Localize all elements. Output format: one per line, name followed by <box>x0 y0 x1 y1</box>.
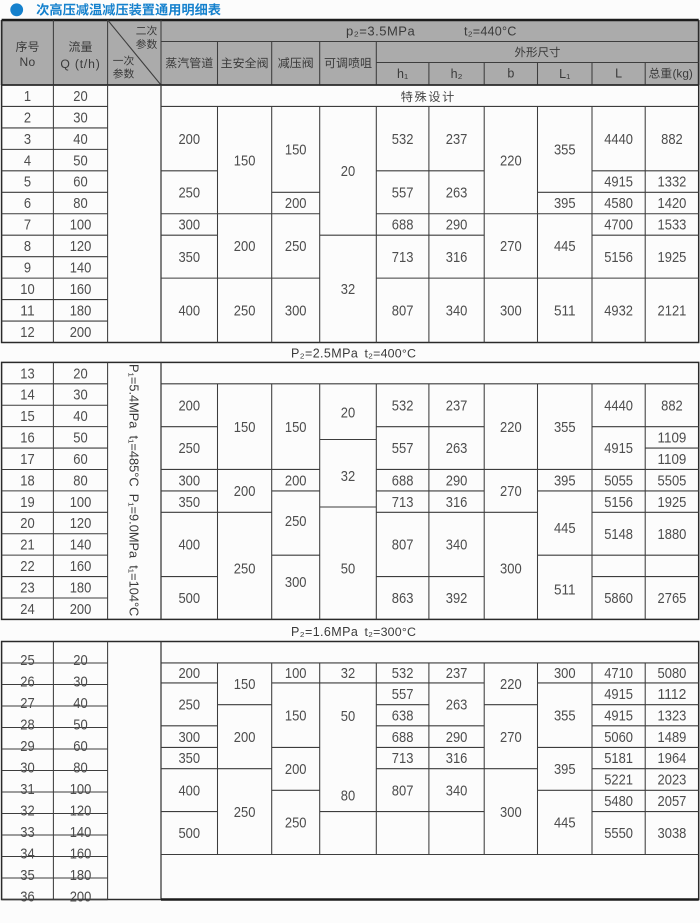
svg-text:12: 12 <box>20 324 34 341</box>
svg-text:882: 882 <box>661 131 683 148</box>
svg-text:40: 40 <box>73 695 87 712</box>
svg-text:14: 14 <box>20 387 34 404</box>
svg-text:t₂=300°C: t₂=300°C <box>365 625 417 639</box>
svg-text:5505: 5505 <box>658 472 687 489</box>
svg-text:50: 50 <box>73 430 87 447</box>
svg-text:355: 355 <box>554 707 576 724</box>
svg-text:263: 263 <box>446 440 468 457</box>
svg-text:557: 557 <box>392 440 414 457</box>
svg-text:35: 35 <box>20 867 34 884</box>
svg-text:395: 395 <box>554 761 576 778</box>
svg-text:21: 21 <box>20 537 34 554</box>
svg-text:50: 50 <box>341 561 355 578</box>
svg-text:220: 220 <box>500 152 522 169</box>
svg-text:100: 100 <box>70 781 92 798</box>
svg-text:50: 50 <box>73 716 87 733</box>
svg-text:t₂=440°C: t₂=440°C <box>464 24 517 38</box>
svg-text:290: 290 <box>446 217 468 234</box>
svg-text:237: 237 <box>446 397 468 414</box>
svg-text:33: 33 <box>20 824 34 841</box>
svg-text:4700: 4700 <box>604 217 633 234</box>
svg-text:557: 557 <box>392 686 414 703</box>
svg-text:250: 250 <box>178 440 200 457</box>
svg-text:250: 250 <box>234 302 256 319</box>
svg-text:1964: 1964 <box>658 750 687 767</box>
svg-text:22: 22 <box>20 558 34 575</box>
svg-text:No: No <box>20 55 36 69</box>
svg-text:500: 500 <box>178 825 200 842</box>
svg-text:511: 511 <box>554 302 576 319</box>
svg-text:4915: 4915 <box>604 174 633 191</box>
svg-text:30: 30 <box>20 759 34 776</box>
svg-text:355: 355 <box>554 419 576 436</box>
svg-text:532: 532 <box>392 397 414 414</box>
svg-text:200: 200 <box>234 238 256 255</box>
svg-text:200: 200 <box>285 761 307 778</box>
svg-text:50: 50 <box>73 152 87 169</box>
svg-text:300: 300 <box>500 302 522 319</box>
svg-text:270: 270 <box>500 483 522 500</box>
svg-text:2121: 2121 <box>658 302 687 319</box>
svg-text:237: 237 <box>446 665 468 682</box>
svg-text:4915: 4915 <box>604 686 633 703</box>
svg-text:150: 150 <box>285 142 307 159</box>
svg-text:11: 11 <box>20 302 34 319</box>
svg-text:5055: 5055 <box>604 472 633 489</box>
svg-text:200: 200 <box>178 397 200 414</box>
svg-text:8: 8 <box>24 238 31 255</box>
svg-text:350: 350 <box>178 249 200 266</box>
svg-text:250: 250 <box>178 697 200 714</box>
svg-text:250: 250 <box>234 804 256 821</box>
svg-text:6: 6 <box>24 195 31 212</box>
svg-text:250: 250 <box>178 184 200 201</box>
svg-text:100: 100 <box>285 665 307 682</box>
svg-text:36: 36 <box>20 888 34 905</box>
svg-text:140: 140 <box>70 824 92 841</box>
svg-text:20: 20 <box>73 652 87 669</box>
svg-text:250: 250 <box>234 561 256 578</box>
svg-text:27: 27 <box>20 695 34 712</box>
svg-text:17: 17 <box>20 451 34 468</box>
svg-text:180: 180 <box>70 579 92 596</box>
svg-text:32: 32 <box>341 281 355 298</box>
svg-text:400: 400 <box>178 537 200 554</box>
svg-text:316: 316 <box>446 249 468 266</box>
svg-text:2023: 2023 <box>658 772 687 789</box>
svg-text:270: 270 <box>500 238 522 255</box>
svg-text:150: 150 <box>234 676 256 693</box>
svg-text:250: 250 <box>285 815 307 832</box>
svg-text:13: 13 <box>20 365 34 382</box>
svg-text:200: 200 <box>178 665 200 682</box>
svg-text:300: 300 <box>500 561 522 578</box>
svg-text:300: 300 <box>554 665 576 682</box>
svg-text:220: 220 <box>500 676 522 693</box>
svg-text:5: 5 <box>24 174 31 191</box>
svg-text:P₂=1.6MPa: P₂=1.6MPa <box>291 625 358 639</box>
svg-text:32: 32 <box>20 802 34 819</box>
svg-text:688: 688 <box>392 217 414 234</box>
svg-text:120: 120 <box>70 515 92 532</box>
svg-text:300: 300 <box>500 804 522 821</box>
svg-text:1880: 1880 <box>658 526 687 543</box>
svg-text:200: 200 <box>234 483 256 500</box>
svg-text:1109: 1109 <box>658 430 687 447</box>
svg-text:340: 340 <box>446 302 468 319</box>
svg-text:2057: 2057 <box>658 793 687 810</box>
svg-text:270: 270 <box>500 729 522 746</box>
svg-text:5080: 5080 <box>658 665 687 682</box>
svg-text:200: 200 <box>70 888 92 905</box>
svg-text:713: 713 <box>392 494 414 511</box>
svg-text:290: 290 <box>446 729 468 746</box>
svg-text:395: 395 <box>554 472 576 489</box>
svg-text:882: 882 <box>661 397 683 414</box>
svg-text:60: 60 <box>73 738 87 755</box>
svg-text:80: 80 <box>73 472 87 489</box>
svg-text:263: 263 <box>446 184 468 201</box>
svg-text:2: 2 <box>24 109 31 126</box>
svg-text:688: 688 <box>392 729 414 746</box>
svg-text:863: 863 <box>392 590 414 607</box>
svg-text:5550: 5550 <box>604 825 633 842</box>
svg-text:(kg): (kg) <box>673 66 693 80</box>
svg-text:24: 24 <box>20 601 34 618</box>
svg-text:237: 237 <box>446 131 468 148</box>
svg-text:34: 34 <box>20 845 34 862</box>
svg-text:300: 300 <box>285 302 307 319</box>
svg-text:220: 220 <box>500 419 522 436</box>
svg-text:4580: 4580 <box>604 195 633 212</box>
svg-text:60: 60 <box>73 451 87 468</box>
svg-text:200: 200 <box>234 729 256 746</box>
svg-text:150: 150 <box>234 152 256 169</box>
svg-text:1112: 1112 <box>658 686 687 703</box>
svg-text:340: 340 <box>446 782 468 799</box>
svg-text:557: 557 <box>392 184 414 201</box>
svg-text:807: 807 <box>392 537 414 554</box>
svg-text:340: 340 <box>446 537 468 554</box>
svg-text:L₁: L₁ <box>559 67 570 81</box>
svg-text:1925: 1925 <box>658 249 687 266</box>
svg-text:p₂=3.5MPa: p₂=3.5MPa <box>346 23 415 38</box>
svg-text:h₂: h₂ <box>451 67 463 81</box>
svg-text:9: 9 <box>24 260 31 277</box>
svg-text:2765: 2765 <box>658 590 687 607</box>
svg-text:1489: 1489 <box>658 729 687 746</box>
svg-text:4915: 4915 <box>604 440 633 457</box>
svg-text:160: 160 <box>70 845 92 862</box>
svg-text:30: 30 <box>73 109 87 126</box>
svg-text:5156: 5156 <box>604 249 633 266</box>
svg-text:30: 30 <box>73 673 87 690</box>
svg-text:1420: 1420 <box>658 195 687 212</box>
svg-text:50: 50 <box>341 708 355 725</box>
svg-text:80: 80 <box>341 788 355 805</box>
svg-text:3: 3 <box>24 131 31 148</box>
svg-text:4440: 4440 <box>604 131 633 148</box>
svg-text:250: 250 <box>285 513 307 530</box>
svg-text:19: 19 <box>20 494 34 511</box>
svg-text:20: 20 <box>20 515 34 532</box>
svg-text:160: 160 <box>70 281 92 298</box>
svg-text:350: 350 <box>178 494 200 511</box>
svg-text:20: 20 <box>73 365 87 382</box>
svg-text:300: 300 <box>178 217 200 234</box>
svg-text:26: 26 <box>20 673 34 690</box>
svg-text:400: 400 <box>178 302 200 319</box>
svg-text:638: 638 <box>392 707 414 724</box>
svg-text:t₂=400°C: t₂=400°C <box>365 346 417 360</box>
svg-text:532: 532 <box>392 665 414 682</box>
svg-text:P₂=2.5MPa: P₂=2.5MPa <box>291 346 358 360</box>
svg-text:L: L <box>615 67 622 81</box>
svg-text:16: 16 <box>20 430 34 447</box>
svg-text:500: 500 <box>178 590 200 607</box>
svg-text:20: 20 <box>73 88 87 105</box>
svg-text:30: 30 <box>73 387 87 404</box>
svg-text:4: 4 <box>24 152 31 169</box>
svg-text:32: 32 <box>341 665 355 682</box>
svg-text:160: 160 <box>70 558 92 575</box>
svg-text:300: 300 <box>285 574 307 591</box>
svg-text:1109: 1109 <box>658 451 687 468</box>
svg-text:1: 1 <box>24 88 31 105</box>
svg-text:300: 300 <box>178 472 200 489</box>
svg-text:60: 60 <box>73 174 87 191</box>
svg-text:807: 807 <box>392 782 414 799</box>
svg-text:100: 100 <box>70 494 92 511</box>
svg-text:445: 445 <box>554 815 576 832</box>
svg-text:511: 511 <box>554 582 576 599</box>
svg-text:20: 20 <box>341 405 355 422</box>
svg-text:316: 316 <box>446 750 468 767</box>
svg-text:200: 200 <box>70 601 92 618</box>
svg-text:80: 80 <box>73 195 87 212</box>
svg-text:150: 150 <box>285 419 307 436</box>
svg-text:290: 290 <box>446 472 468 489</box>
svg-text:7: 7 <box>24 217 31 234</box>
svg-text:395: 395 <box>554 195 576 212</box>
svg-text:20: 20 <box>341 163 355 180</box>
svg-text:250: 250 <box>285 238 307 255</box>
svg-text:140: 140 <box>70 260 92 277</box>
svg-text:1332: 1332 <box>658 174 687 191</box>
svg-text:31: 31 <box>20 781 34 798</box>
svg-text:1925: 1925 <box>658 494 687 511</box>
svg-text:5221: 5221 <box>604 772 633 789</box>
svg-text:5181: 5181 <box>604 750 633 767</box>
svg-text:40: 40 <box>73 408 87 425</box>
svg-text:5860: 5860 <box>604 590 633 607</box>
svg-text:40: 40 <box>73 131 87 148</box>
svg-text:100: 100 <box>70 217 92 234</box>
svg-text:263: 263 <box>446 697 468 714</box>
svg-text:h₁: h₁ <box>397 67 408 81</box>
svg-text:150: 150 <box>285 707 307 724</box>
svg-text:b: b <box>507 67 514 81</box>
svg-text:5480: 5480 <box>604 793 633 810</box>
svg-text:5060: 5060 <box>604 729 633 746</box>
svg-text:140: 140 <box>70 537 92 554</box>
svg-text:200: 200 <box>178 131 200 148</box>
svg-text:355: 355 <box>554 142 576 159</box>
svg-text:1323: 1323 <box>658 707 687 724</box>
svg-text:Q (t/h): Q (t/h) <box>60 57 100 71</box>
svg-text:25: 25 <box>20 652 34 669</box>
svg-text:29: 29 <box>20 738 34 755</box>
svg-text:180: 180 <box>70 867 92 884</box>
svg-text:400: 400 <box>178 782 200 799</box>
svg-text:807: 807 <box>392 302 414 319</box>
svg-text:18: 18 <box>20 472 34 489</box>
svg-text:3038: 3038 <box>658 825 687 842</box>
svg-text:120: 120 <box>70 238 92 255</box>
svg-text:120: 120 <box>70 802 92 819</box>
svg-text:532: 532 <box>392 131 414 148</box>
svg-text:713: 713 <box>392 750 414 767</box>
svg-text:713: 713 <box>392 249 414 266</box>
svg-text:300: 300 <box>178 729 200 746</box>
svg-text:180: 180 <box>70 302 92 319</box>
svg-text:350: 350 <box>178 750 200 767</box>
svg-text:445: 445 <box>554 238 576 255</box>
svg-text:4932: 4932 <box>604 302 633 319</box>
svg-text:200: 200 <box>285 472 307 489</box>
svg-text:200: 200 <box>70 324 92 341</box>
svg-text:5156: 5156 <box>604 494 633 511</box>
svg-text:10: 10 <box>20 281 34 298</box>
svg-text:392: 392 <box>446 590 468 607</box>
svg-text:23: 23 <box>20 579 34 596</box>
svg-text:32: 32 <box>341 468 355 485</box>
svg-text:1533: 1533 <box>658 217 687 234</box>
svg-text:28: 28 <box>20 716 34 733</box>
svg-text:4915: 4915 <box>604 707 633 724</box>
svg-text:688: 688 <box>392 472 414 489</box>
svg-text:80: 80 <box>73 759 87 776</box>
svg-text:316: 316 <box>446 494 468 511</box>
svg-text:P₁=5.4MPa t₁=485°C P₁=9.0MPa: P₁=5.4MPa t₁=485°C P₁=9.0MPa t₁=104°C <box>127 364 142 616</box>
svg-text:445: 445 <box>554 520 576 537</box>
svg-text:5148: 5148 <box>604 526 633 543</box>
svg-text:15: 15 <box>20 408 34 425</box>
svg-text:150: 150 <box>234 419 256 436</box>
svg-text:4710: 4710 <box>604 665 633 682</box>
svg-text:4440: 4440 <box>604 397 633 414</box>
svg-text:200: 200 <box>285 195 307 212</box>
